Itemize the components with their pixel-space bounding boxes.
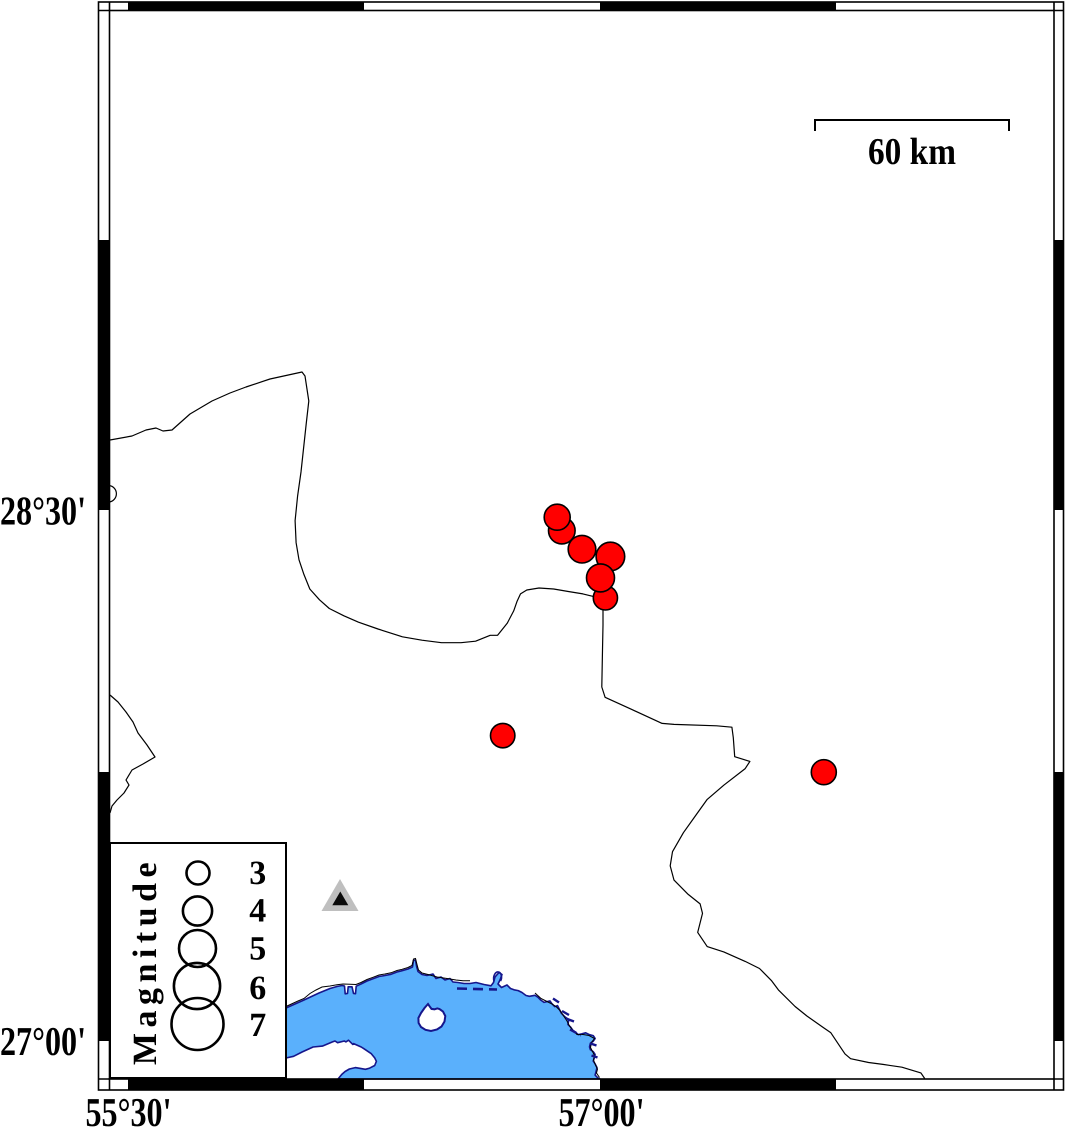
svg-text:57°00': 57°00' — [559, 1089, 645, 1128]
svg-text:4: 4 — [249, 893, 266, 930]
svg-text:5: 5 — [249, 931, 266, 968]
svg-text:6: 6 — [249, 970, 266, 1007]
svg-text:55°30': 55°30' — [86, 1089, 172, 1128]
svg-text:7: 7 — [249, 1007, 266, 1044]
svg-text:28°30': 28°30' — [0, 488, 86, 534]
svg-text:60 km: 60 km — [868, 131, 956, 173]
svg-text:3: 3 — [249, 855, 266, 892]
svg-text:Magnitude: Magnitude — [127, 857, 164, 1065]
svg-text:27°00': 27°00' — [0, 1018, 86, 1064]
